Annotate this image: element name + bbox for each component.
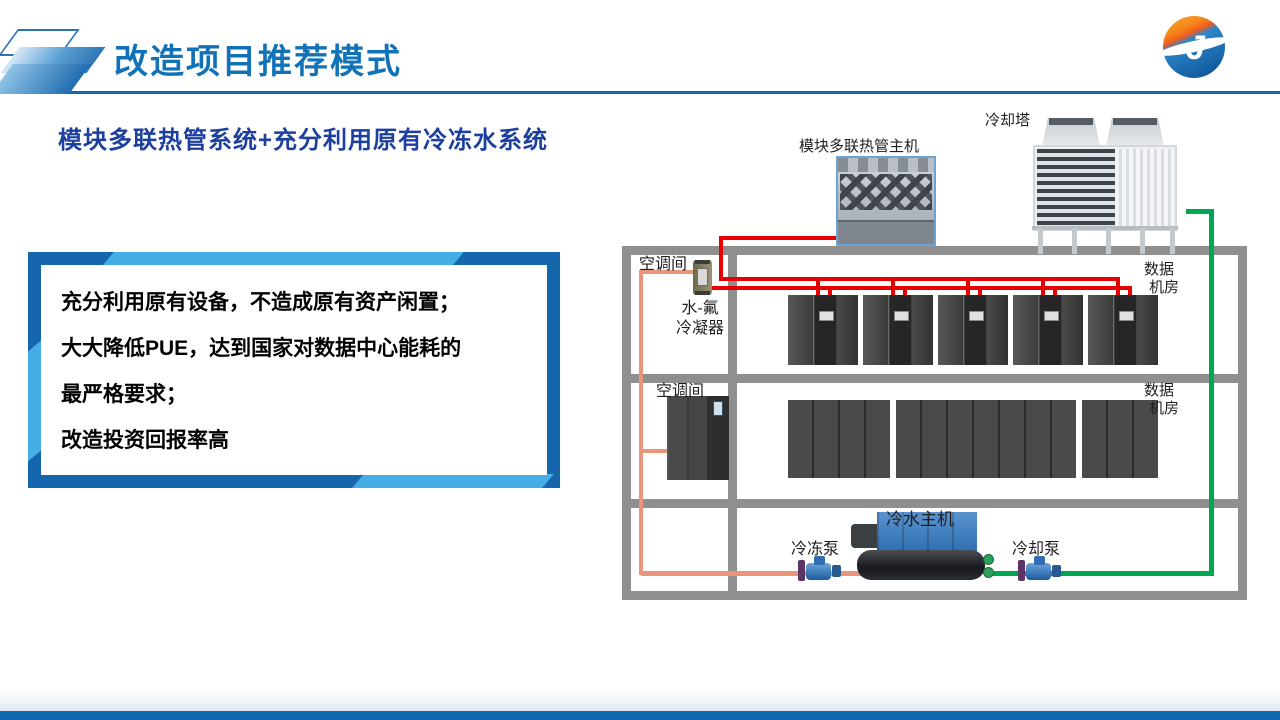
refrigerant-pipe-drop: [903, 286, 907, 295]
server-rack-group: [788, 295, 858, 365]
data-room-2-rack-row: [788, 400, 1168, 478]
refrigerant-pipe-header-return: [710, 286, 1130, 290]
chiller-shell: [857, 550, 985, 580]
pump-body: [1026, 563, 1051, 580]
refrigerant-pipe-drop: [816, 277, 820, 295]
crac-display: [713, 401, 723, 416]
tower-sill: [1032, 226, 1178, 230]
slide-subtitle: 模块多联热管系统+充分利用原有冷冻水系统: [58, 120, 548, 155]
server-rack: [788, 295, 814, 365]
highlight-line: 大大降低PUE，达到国家对数据中心能耗的: [61, 326, 547, 372]
chiller-nozzle: [983, 567, 994, 578]
cooling-water-pump: [1018, 555, 1064, 585]
server-rack-group: [1088, 295, 1158, 365]
server-rack-block: [788, 400, 890, 478]
label-data-room-2-line2: 机房: [1144, 400, 1179, 418]
inrow-ac-unit: [1115, 295, 1136, 365]
server-rack: [938, 295, 964, 365]
server-rack: [1088, 295, 1114, 365]
highlight-box: 充分利用原有设备，不造成原有资产闲置； 大大降低PUE，达到国家对数据中心能耗的…: [28, 252, 560, 488]
label-data-room-2: 数据 机房: [1144, 382, 1179, 418]
room-wall-left: [622, 246, 631, 600]
highlight-box-accent-top: [102, 252, 464, 266]
crac-unit: [667, 396, 729, 480]
page-title: 改造项目推荐模式: [114, 34, 402, 83]
tower-fan-shroud: [1106, 118, 1164, 146]
label-data-room-2-line1: 数据: [1144, 382, 1179, 400]
slide: 改造项目推荐模式 J 模块多联热管系统+充分利用原有冷冻水系统 充分利用原有设备…: [0, 0, 1280, 720]
label-module-unit: 模块多联热管主机: [799, 135, 919, 156]
tower-fan-shroud: [1042, 118, 1100, 146]
pump-outlet: [832, 565, 841, 577]
cooling-water-pipe-riser: [1209, 209, 1214, 576]
chilled-water-pipe-branch: [641, 449, 668, 453]
label-chilled-pump: 冷冻泵: [791, 535, 839, 559]
label-chiller: 冷水主机: [886, 505, 954, 530]
condenser-cap: [695, 291, 710, 295]
label-cooling-tower: 冷却塔: [985, 109, 1030, 130]
pump-outlet: [1052, 565, 1061, 577]
inrow-ac-unit: [1040, 295, 1061, 365]
label-condenser-line1: 水-氟: [668, 299, 732, 319]
ac-unit-display: [1119, 311, 1134, 321]
tower-leg: [1170, 228, 1175, 254]
refrigerant-pipe-drop: [1116, 277, 1120, 295]
server-rack-group: [938, 295, 1008, 365]
logo-letter: J: [1186, 29, 1205, 68]
refrigerant-pipe-drop: [1041, 277, 1045, 295]
chiller-nozzle: [983, 554, 994, 565]
tower-leg: [1106, 228, 1111, 254]
room-wall-bottom: [622, 591, 1247, 600]
label-data-room-1-line2: 机房: [1144, 279, 1179, 297]
unit-fans: [838, 158, 934, 172]
company-logo: J: [1163, 16, 1225, 78]
server-rack: [912, 295, 933, 365]
refrigerant-pipe-segment: [719, 236, 723, 280]
highlight-box-accent-bottom: [352, 474, 554, 488]
data-room-1-rack-row: [788, 295, 1160, 365]
server-rack: [837, 295, 858, 365]
server-rack-group: [863, 295, 933, 365]
tower-panels: [1115, 149, 1173, 227]
tower-fan-cap: [1113, 118, 1157, 125]
title-underline: [34, 91, 1280, 94]
highlight-line: 改造投资回报率高: [61, 418, 547, 464]
unit-coils: [840, 174, 932, 210]
refrigerant-pipe-drop: [966, 277, 970, 295]
ac-unit-display: [819, 311, 834, 321]
refrigerant-pipe-segment: [720, 236, 838, 240]
header-decoration-gradient-2: [0, 64, 91, 94]
chilled-water-pump: [798, 555, 844, 585]
label-data-room-1: 数据 机房: [1144, 261, 1179, 297]
tower-louvers: [1037, 149, 1115, 227]
refrigerant-pipe-drop: [1053, 286, 1057, 295]
heat-pipe-unit-photo: [836, 156, 936, 246]
refrigerant-pipe-header-supply: [719, 277, 1116, 281]
label-ac-room-2: 空调间: [656, 377, 704, 401]
pump-body: [806, 563, 831, 580]
server-rack: [863, 295, 889, 365]
highlight-line: 最严格要求；: [61, 372, 547, 418]
server-rack-block: [896, 400, 1076, 478]
condenser-panel: [697, 268, 708, 286]
inrow-ac-unit: [815, 295, 836, 365]
tower-leg: [1140, 228, 1145, 254]
server-rack: [1137, 295, 1158, 365]
refrigerant-pipe-drop: [891, 277, 895, 295]
label-condenser-line2: 冷凝器: [668, 319, 732, 339]
server-rack: [987, 295, 1008, 365]
highlight-box-body: 充分利用原有设备，不造成原有资产闲置； 大大降低PUE，达到国家对数据中心能耗的…: [41, 265, 547, 475]
inrow-ac-unit: [965, 295, 986, 365]
refrigerant-pipe-drop: [978, 286, 982, 295]
tower-fan-cap: [1049, 118, 1093, 125]
pump-flange: [798, 560, 805, 581]
server-rack-group: [1013, 295, 1083, 365]
label-data-room-1-line1: 数据: [1144, 261, 1179, 279]
ac-unit-display: [894, 311, 909, 321]
water-fluorine-condenser: [693, 260, 712, 295]
server-rack: [1062, 295, 1083, 365]
highlight-line: 充分利用原有设备，不造成原有资产闲置；: [61, 280, 547, 326]
refrigerant-pipe-drop: [1128, 286, 1132, 295]
room-wall-right: [1238, 246, 1247, 600]
highlight-box-accent-left: [28, 340, 42, 467]
label-cooling-pump: 冷却泵: [1012, 535, 1060, 559]
footer-gradient: [0, 690, 1280, 711]
tower-leg: [1072, 228, 1077, 254]
cooling-tower-image: [1030, 118, 1180, 254]
label-ac-room-1: 空调间: [639, 250, 687, 274]
footer-accent-bar: [0, 711, 1280, 720]
chilled-water-pipe-riser: [639, 270, 643, 575]
ac-unit-display: [969, 311, 984, 321]
refrigerant-pipe-drop: [828, 286, 832, 295]
ac-unit-display: [1044, 311, 1059, 321]
condenser-cap: [695, 260, 710, 264]
pump-flange: [1018, 560, 1025, 581]
unit-base: [838, 220, 934, 244]
label-condenser: 水-氟 冷凝器: [668, 299, 732, 339]
server-rack: [1013, 295, 1039, 365]
inrow-ac-unit: [890, 295, 911, 365]
tower-body: [1033, 145, 1177, 231]
tower-leg: [1038, 228, 1043, 254]
